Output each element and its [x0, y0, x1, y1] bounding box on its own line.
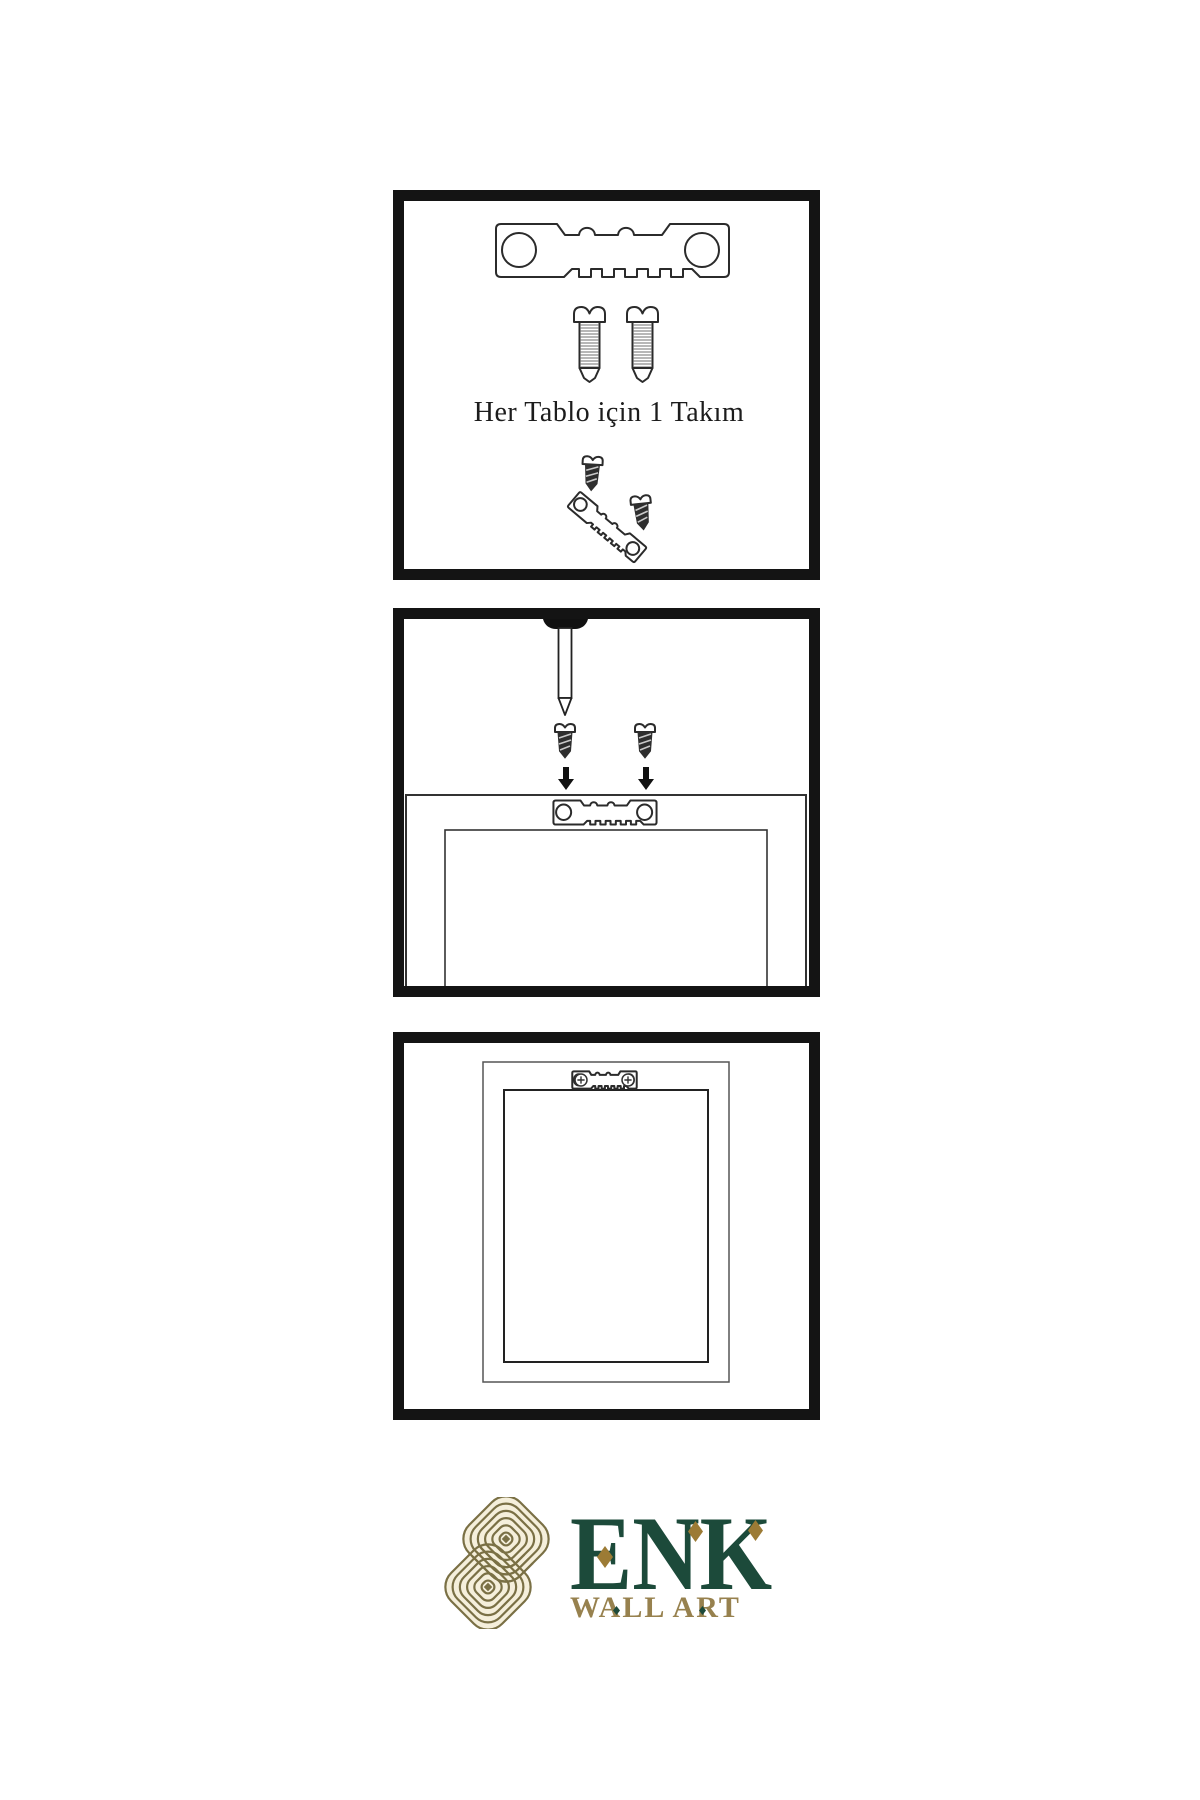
gold-diamond-icon	[688, 1521, 703, 1542]
sawtooth-hanger-icon	[496, 224, 729, 277]
small-screw-icon	[581, 456, 603, 491]
arrow-down-icon	[638, 767, 654, 790]
panel-hardware-kit: Her Tablo için 1 Takım	[393, 190, 820, 580]
screw-icon	[555, 724, 575, 758]
arrow-down-icon	[558, 767, 574, 790]
gold-diamond-icon	[597, 1546, 613, 1568]
mounting-screw-icon	[574, 307, 605, 382]
phillips-screw-icon	[622, 1074, 634, 1086]
gold-diamond-icon	[748, 1520, 763, 1541]
brand-tagline: WALL ART	[570, 1591, 741, 1625]
picture-frame	[483, 1062, 729, 1382]
brand-name: ENK	[570, 1498, 772, 1609]
mounting-screw-icon	[627, 307, 658, 382]
accent-diamond-icon	[613, 1606, 620, 1615]
phillips-screw-icon	[575, 1074, 587, 1086]
panel-hung-frame	[393, 1032, 820, 1420]
screw-icon	[635, 724, 655, 758]
panel1-caption: Her Tablo için 1 Takım	[474, 397, 744, 428]
panel-mounting-steps	[393, 608, 820, 997]
knot-icon	[436, 1497, 562, 1629]
wall-nail-icon	[543, 619, 588, 715]
small-screw-icon	[630, 495, 653, 531]
accent-diamond-icon	[699, 1606, 706, 1615]
